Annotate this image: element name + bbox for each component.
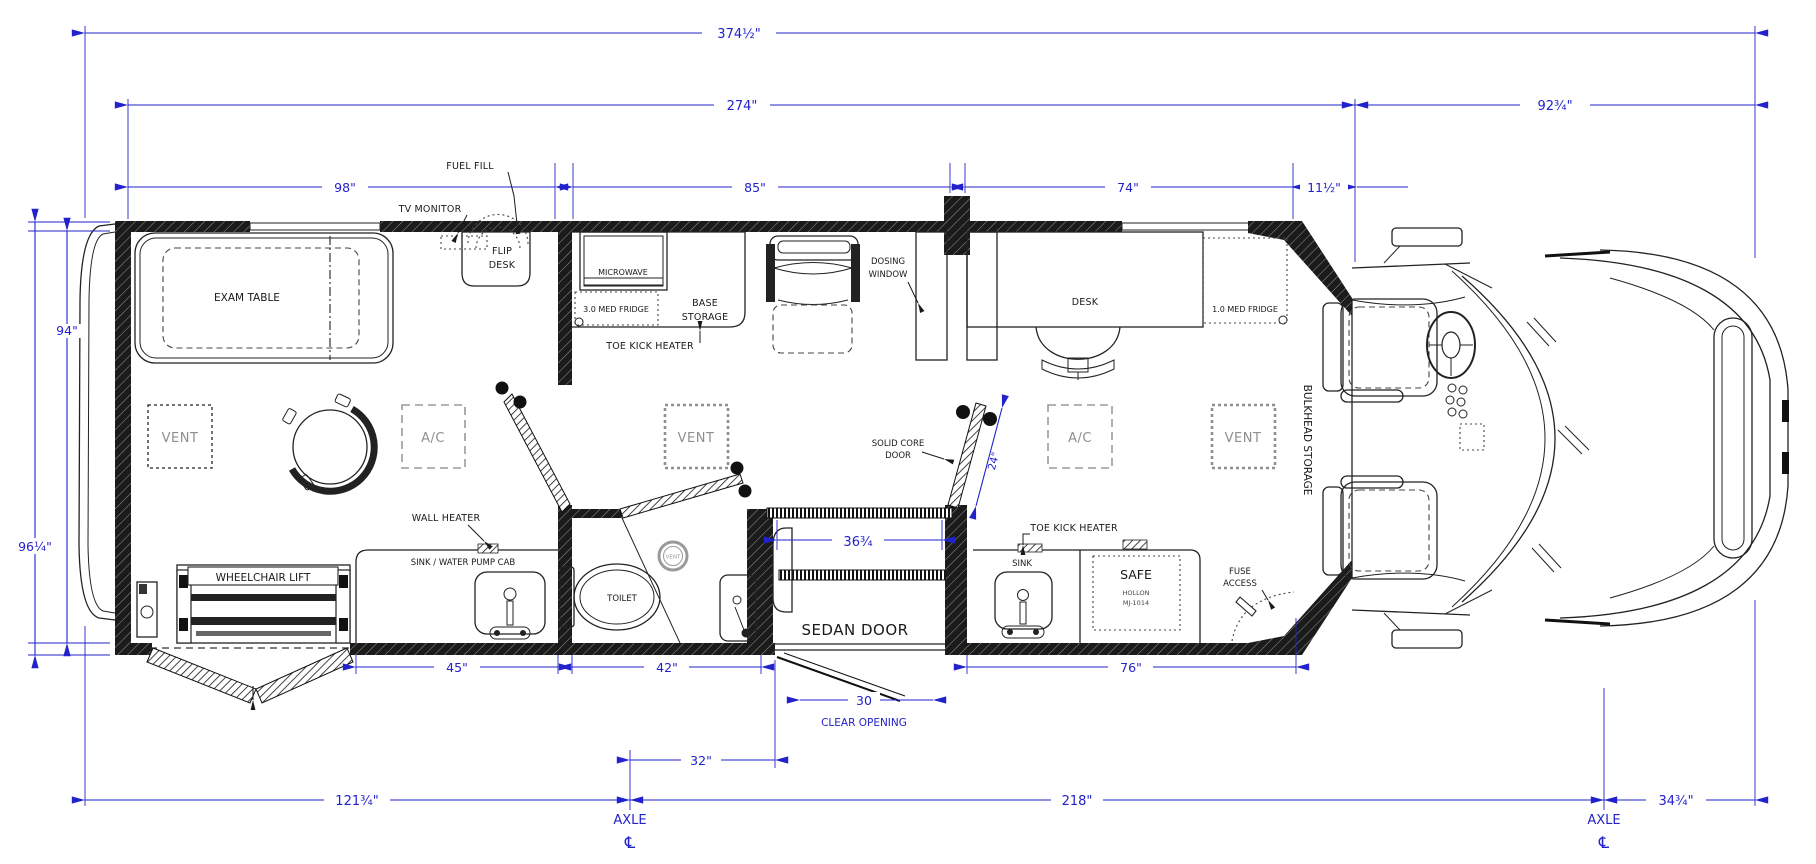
callouts: FUEL FILL TV MONITOR WALL HEATER <box>398 161 517 541</box>
safe-label: SAFE <box>1120 567 1152 582</box>
fuse-access-label: FUSE <box>1229 567 1251 577</box>
grille <box>1714 318 1752 558</box>
sink-water-pump-label: SINK / WATER PUMP CAB <box>411 558 516 568</box>
rear-bumper <box>79 224 115 620</box>
exam-stool <box>282 393 374 491</box>
mirror-top <box>1392 228 1462 246</box>
toe-kick-heater-label-2: TOE KICK HEATER <box>1029 523 1118 534</box>
exam-table-label: EXAM TABLE <box>214 292 280 304</box>
exam-room: EXAM TABLE FLIP DESK VENT A/C <box>135 214 558 703</box>
round-vent-label: VENT <box>666 555 681 561</box>
window-rear <box>250 223 380 230</box>
dim-sink-cab: 45" <box>446 660 468 675</box>
sedan-right-post <box>945 505 967 655</box>
door-leaf-a <box>504 394 570 512</box>
dim-right-cab: 76" <box>1120 660 1142 675</box>
axle-label-1: AXLE <box>613 813 646 828</box>
flip-desk-label: FLIP <box>492 246 512 257</box>
dim-rear-to-axle: 121¾" <box>335 794 378 809</box>
toe-kick-heater-label-1: TOE KICK HEATER <box>605 341 694 352</box>
bulkhead-storage-label: BULKHEAD STORAGE <box>1301 385 1313 496</box>
svg-text:DESK: DESK <box>489 260 516 271</box>
dim-bulkhead-depth: 11½" <box>1307 180 1341 195</box>
seat-passenger <box>1323 299 1437 402</box>
cab <box>1323 228 1789 648</box>
dim-clear-opening-value: 30 <box>856 693 872 708</box>
office-room: DESK 1.0 MED FRIDGE A/C VENT SINK TOE KI… <box>967 232 1313 643</box>
safe-brand: HOLLON <box>1123 589 1150 597</box>
tv-monitor-label: TV MONITOR <box>398 204 462 215</box>
dim-axle-to-front: 34¾" <box>1658 794 1693 809</box>
dim-interior-width: 94" <box>56 323 78 338</box>
hood-front <box>1545 250 1789 626</box>
floorplan-drawing: EXAM TABLE FLIP DESK VENT A/C <box>0 0 1816 864</box>
solid-core-door-label: SOLID CORE <box>872 439 924 449</box>
vehicle-shell <box>79 196 1352 655</box>
microwave-outline <box>580 232 667 290</box>
dim-overall-length: 374½" <box>717 27 760 42</box>
desk-label: DESK <box>1072 297 1099 308</box>
bottom-wall <box>131 643 152 655</box>
svg-text:STORAGE: STORAGE <box>682 312 729 323</box>
dim-bath-width: 42" <box>656 660 678 675</box>
sink-water-pump-cabinet: SINK / WATER PUMP CAB <box>356 544 558 643</box>
floorplan-svg: EXAM TABLE FLIP DESK VENT A/C <box>0 0 1816 864</box>
wall-heater-label: WALL HEATER <box>412 513 481 524</box>
svg-text:WINDOW: WINDOW <box>869 270 909 280</box>
fuse-access: FUSE ACCESS <box>1223 567 1294 641</box>
fuel-fill-label: FUEL FILL <box>446 161 494 172</box>
solid-core-door-leaf <box>948 403 986 508</box>
desk-chair <box>1036 327 1120 359</box>
wheelchair-lift: WHEELCHAIR LIFT <box>137 565 353 703</box>
ac-label-1: A/C <box>421 431 445 446</box>
wall-heater-unit <box>478 544 498 553</box>
base-storage-label: BASE <box>692 298 718 309</box>
dim-wheelbase: 218" <box>1062 794 1093 809</box>
bulkhead-bottom-corner <box>1248 560 1352 655</box>
safe: SAFE HOLLON MJ-1014 <box>1093 540 1180 630</box>
desk-outline <box>967 232 1203 327</box>
window-front <box>1122 223 1250 230</box>
dim-office-room: 74" <box>1117 180 1139 195</box>
vent-label-1: VENT <box>162 431 199 446</box>
dim-overall-width: 96¼" <box>18 539 52 554</box>
axle-centerline-1: ℄ <box>624 833 636 852</box>
dim-front-length: 92¾" <box>1537 99 1572 114</box>
axle-centerline-2: ℄ <box>1598 833 1610 852</box>
sedan-door-label: SEDAN DOOR <box>801 621 908 639</box>
dim-door-leaf: 24" <box>986 451 1002 472</box>
bathroom: TOILET VENT <box>560 518 756 643</box>
steering-wheel <box>1427 312 1475 378</box>
top-wall <box>131 221 250 232</box>
wheelchair-lift-label: WHEELCHAIR LIFT <box>216 572 311 584</box>
dim-exam-room: 98" <box>334 180 356 195</box>
rear-wall <box>115 221 131 655</box>
bulkhead-top-corner <box>1248 221 1352 316</box>
lift-door-left <box>147 648 256 703</box>
dosing-window: DOSING WINDOW <box>869 232 997 360</box>
dosing-window-label: DOSING <box>871 257 905 267</box>
interior-wall-1 <box>558 231 572 385</box>
toilet-label: TOILET <box>606 594 637 604</box>
med-fridge-1-label: 1.0 MED FRIDGE <box>1212 305 1278 314</box>
bathroom-door-leaf <box>620 474 743 518</box>
svg-text:DOOR: DOOR <box>885 451 911 461</box>
dim-clear-opening-label: CLEAR OPENING <box>821 717 907 729</box>
dim-mid-room: 85" <box>744 180 766 195</box>
med-fridge-3-label: 3.0 MED FRIDGE <box>583 305 649 314</box>
ac-label-2: A/C <box>1068 431 1092 446</box>
seat-driver <box>1323 476 1437 579</box>
sedan-left-post <box>747 509 773 655</box>
mirror-bottom <box>1392 630 1462 648</box>
axle-label-2: AXLE <box>1587 813 1620 828</box>
tv-monitor-outline <box>441 236 487 249</box>
dash-console <box>1352 297 1484 581</box>
dosing-wall-column <box>944 196 970 255</box>
vent-label-2: VENT <box>678 431 715 446</box>
microwave-label: MICROWAVE <box>598 268 648 277</box>
windshield <box>1445 264 1589 614</box>
sink-right-label: SINK <box>1012 559 1032 569</box>
safe-model: MJ-1014 <box>1123 599 1149 607</box>
lift-door-right <box>256 648 353 703</box>
dim-body-length: 274" <box>727 99 758 114</box>
dim-axle-to-door: 32" <box>690 753 712 768</box>
svg-text:ACCESS: ACCESS <box>1223 579 1257 589</box>
dim-sedan-opening: 36¾ <box>843 535 873 550</box>
dosing-chair <box>766 236 860 353</box>
bathroom-top-wall <box>572 509 622 518</box>
vent-label-3: VENT <box>1225 431 1262 446</box>
